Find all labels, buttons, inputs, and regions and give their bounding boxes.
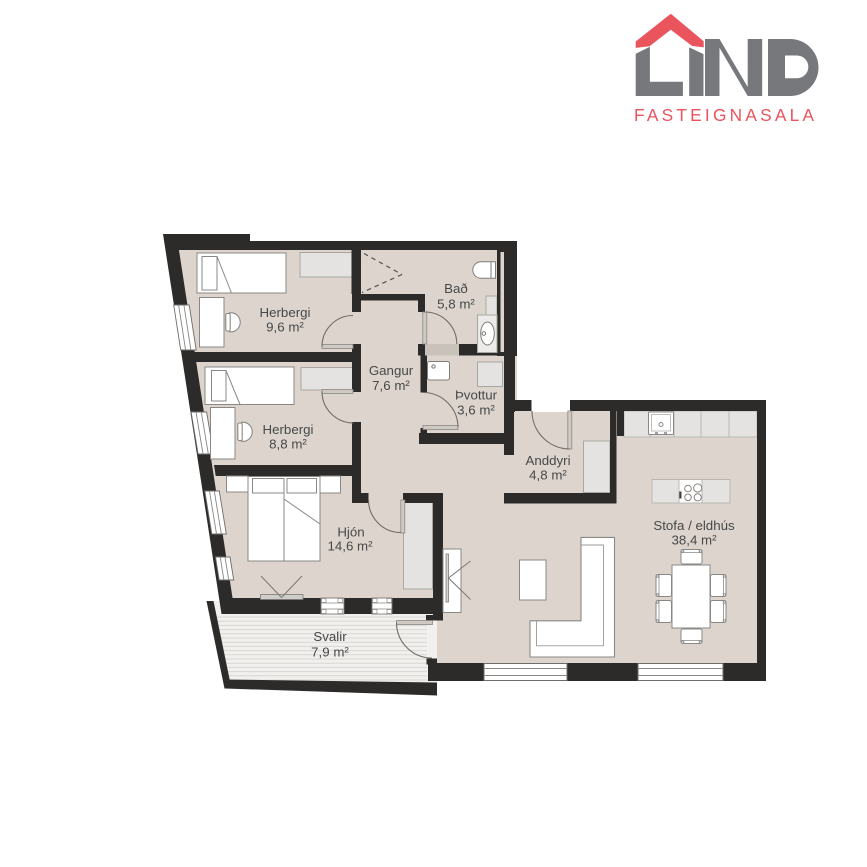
svg-text:7,6 m²: 7,6 m²: [372, 378, 410, 393]
svg-text:Anddyri: Anddyri: [525, 453, 570, 468]
svg-text:Herbergi: Herbergi: [263, 422, 314, 437]
svg-text:7,9 m²: 7,9 m²: [311, 645, 349, 660]
svg-text:3,6 m²: 3,6 m²: [457, 403, 495, 418]
svg-text:Svalir: Svalir: [313, 629, 347, 644]
svg-text:Bað: Bað: [444, 281, 468, 296]
svg-text:9,6 m²: 9,6 m²: [266, 320, 304, 335]
svg-text:Stofa / eldhús: Stofa / eldhús: [653, 518, 735, 533]
svg-text:Hjón: Hjón: [337, 525, 364, 540]
svg-text:Herbergi: Herbergi: [260, 305, 311, 320]
svg-text:8,8 m²: 8,8 m²: [269, 437, 307, 452]
svg-text:Gangur: Gangur: [369, 363, 414, 378]
svg-text:38,4 m²: 38,4 m²: [671, 533, 717, 548]
svg-text:FASTEIGNASALA: FASTEIGNASALA: [634, 105, 817, 125]
svg-text:4,8 m²: 4,8 m²: [529, 468, 567, 483]
svg-text:14,6 m²: 14,6 m²: [327, 539, 373, 554]
svg-text:Þvottur: Þvottur: [455, 388, 498, 403]
svg-text:5,8 m²: 5,8 m²: [437, 297, 475, 312]
